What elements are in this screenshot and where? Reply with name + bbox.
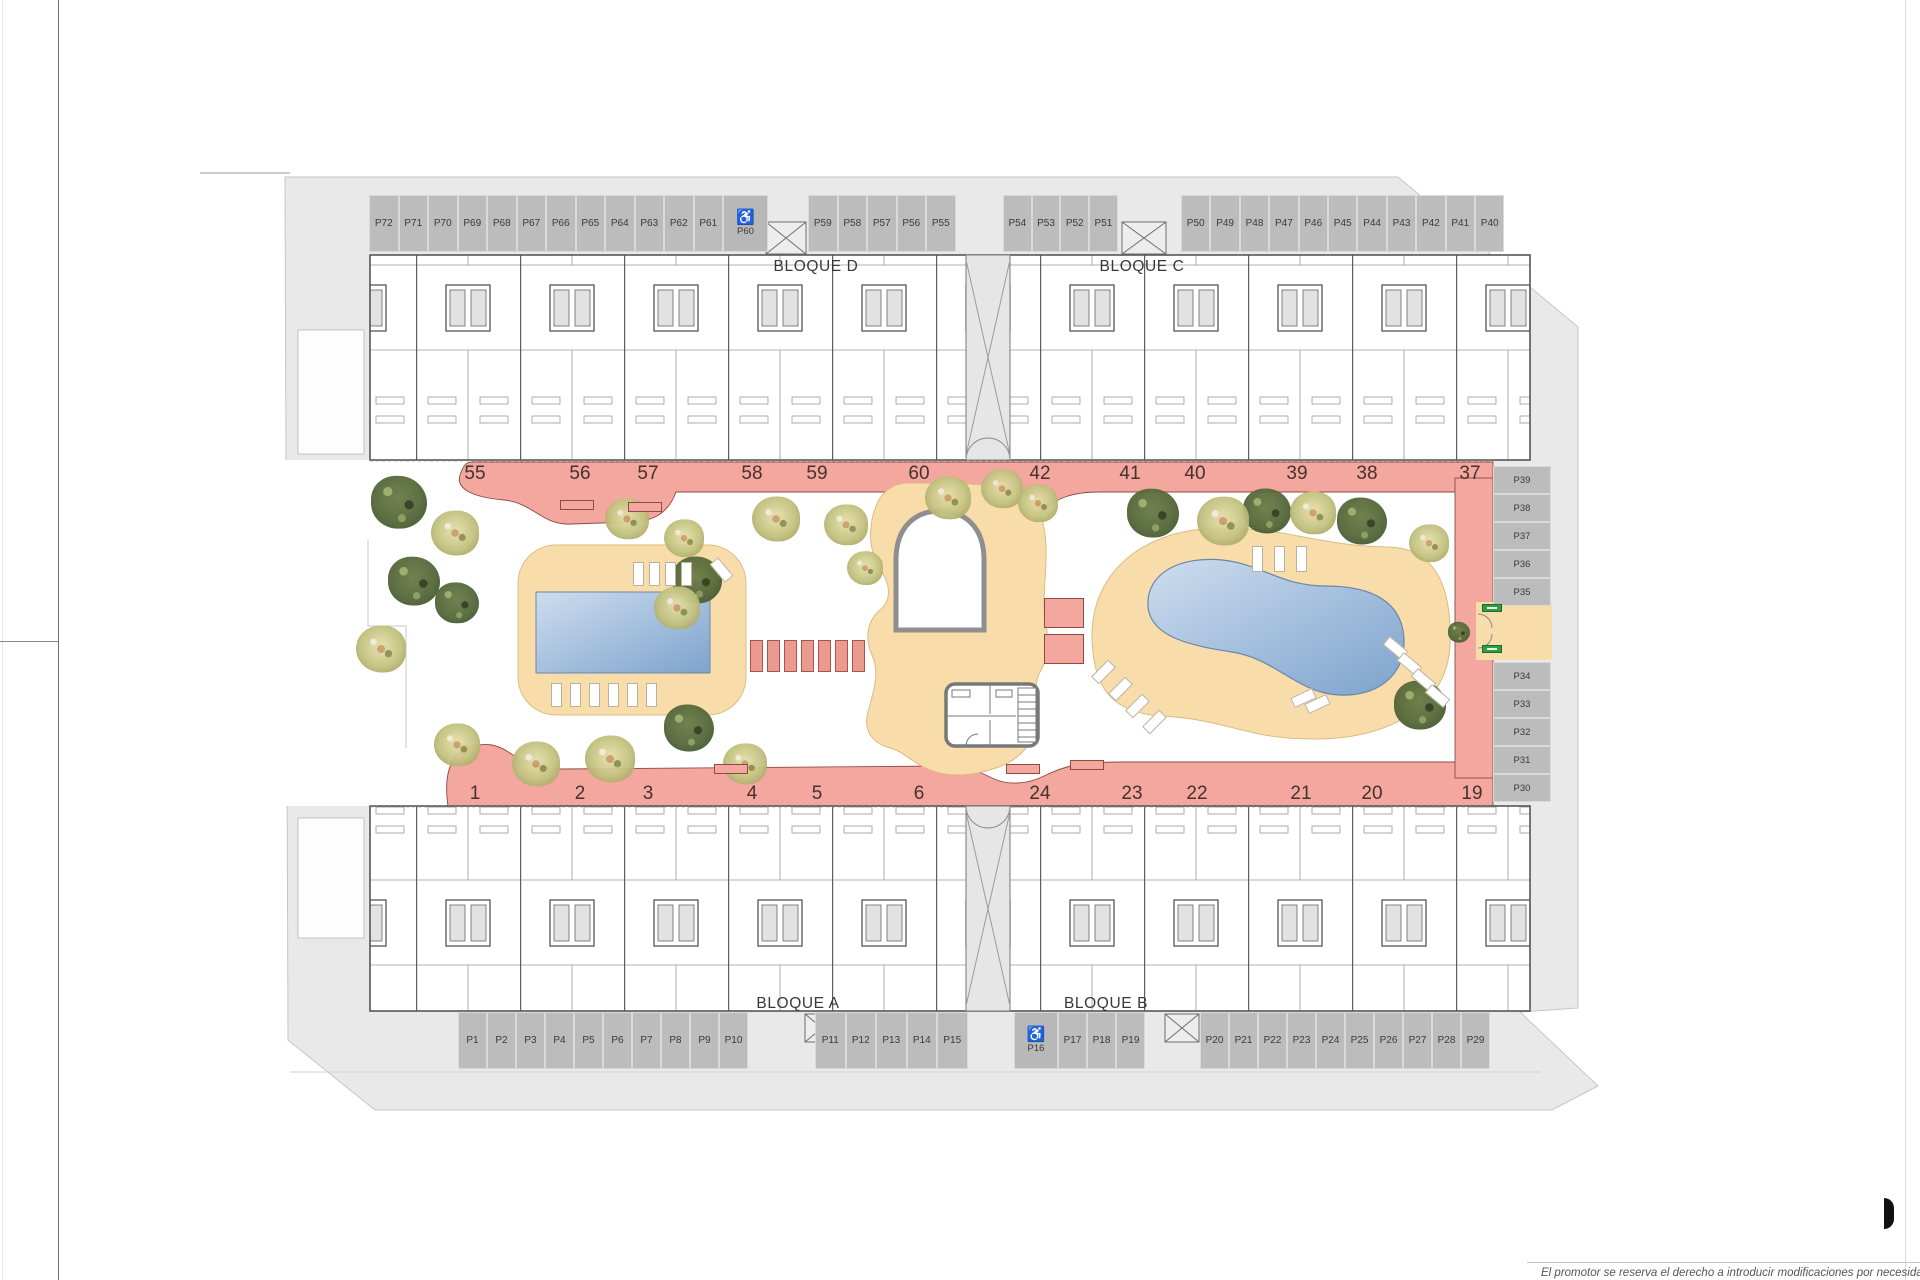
tree-icon [1197, 497, 1249, 546]
parking-stall: P9 [690, 1012, 719, 1069]
parking-stall-label: P62 [670, 218, 688, 229]
unit-number: 37 [1459, 463, 1480, 485]
block-label-bloque-c: BLOQUE C [1100, 258, 1185, 276]
sun-lounger-icon [570, 683, 581, 707]
parking-stall-label: P20 [1206, 1035, 1224, 1046]
sheet-right-rule [1905, 0, 1906, 1280]
parking-stall-label: P63 [640, 218, 658, 229]
parking-stall: P48 [1240, 195, 1269, 252]
walkway-connector [1044, 598, 1084, 628]
parking-stall-label: P2 [495, 1035, 507, 1046]
parking-stall-label: P44 [1363, 218, 1381, 229]
parking-stall-label: P56 [902, 218, 920, 229]
parking-stall: P32 [1493, 718, 1551, 746]
parking-stall-label: P70 [434, 218, 452, 229]
tree-icon [1018, 484, 1058, 522]
parking-stall-accessible: ♿P16 [1014, 1012, 1058, 1069]
tree-icon [664, 519, 704, 557]
sun-lounger-icon [589, 683, 600, 707]
parking-stall-label: P9 [698, 1035, 710, 1046]
parking-stall: P20 [1200, 1012, 1229, 1069]
sun-lounger-icon [665, 562, 676, 586]
block-label-bloque-a: BLOQUE A [756, 995, 839, 1013]
parking-stall-label: P39 [1514, 475, 1531, 486]
parking-stall: P69 [458, 195, 488, 252]
parking-stall-label: P10 [725, 1035, 743, 1046]
parking-stall-label: P19 [1122, 1035, 1140, 1046]
sun-lounger-icon [1091, 660, 1116, 685]
unit-number: 3 [643, 783, 654, 805]
parking-stall: P12 [846, 1012, 877, 1069]
parking-stall-label: P33 [1514, 699, 1531, 710]
stepping-stone [784, 640, 797, 672]
parking-stall-label: P71 [404, 218, 422, 229]
parking-stall-accessible: ♿P60 [723, 195, 768, 252]
parking-stall-label: P8 [669, 1035, 681, 1046]
parking-stall-label: P7 [640, 1035, 652, 1046]
unit-number: 58 [741, 463, 762, 485]
parking-stall-label: P23 [1293, 1035, 1311, 1046]
tree-icon [847, 551, 883, 585]
parking-stall-label: P60 [737, 226, 754, 237]
stepping-stone [750, 640, 763, 672]
sun-lounger-icon [1108, 677, 1133, 702]
unit-number: 4 [747, 783, 758, 805]
tree-icon [1337, 498, 1387, 545]
sun-lounger-icon [1252, 546, 1263, 572]
parking-stall-label: P24 [1322, 1035, 1340, 1046]
parking-stall-label: P6 [611, 1035, 623, 1046]
parking-stall-label: P50 [1187, 218, 1205, 229]
parking-stall: P6 [603, 1012, 632, 1069]
parking-stall: P22 [1258, 1012, 1287, 1069]
stepping-stone [818, 640, 831, 672]
parking-stall-label: P66 [552, 218, 570, 229]
stepping-stone [852, 640, 865, 672]
exit-sign-icon [1482, 645, 1502, 653]
parking-stall-label: P12 [852, 1035, 870, 1046]
parking-stall: P50 [1181, 195, 1210, 252]
parking-stall-label: P67 [522, 218, 540, 229]
parking-stall: P8 [661, 1012, 690, 1069]
unit-number: 38 [1356, 463, 1377, 485]
tree-icon [925, 476, 971, 519]
unit-number: 23 [1121, 783, 1142, 805]
tree-icon [512, 741, 560, 786]
sun-lounger-icon [627, 683, 638, 707]
parking-stall: P43 [1387, 195, 1416, 252]
walkway-bench [628, 502, 662, 512]
unit-number: 59 [806, 463, 827, 485]
parking-stall-label: P31 [1514, 755, 1531, 766]
parking-stall-label: P1 [466, 1035, 478, 1046]
tree-icon [585, 736, 635, 783]
tree-icon [1243, 488, 1291, 533]
parking-stall: P47 [1269, 195, 1298, 252]
tree-icon [388, 557, 440, 606]
parking-stall: P42 [1416, 195, 1445, 252]
parking-stall-label: P4 [553, 1035, 565, 1046]
parking-stall-label: P5 [582, 1035, 594, 1046]
unit-number: 2 [575, 783, 586, 805]
wheelchair-icon: ♿ [1027, 1027, 1046, 1042]
parking-stall: P36 [1493, 550, 1551, 578]
parking-stall-label: P46 [1304, 218, 1322, 229]
sun-lounger-icon [649, 562, 660, 586]
parking-stall: P5 [574, 1012, 603, 1069]
sun-lounger-icon [1274, 546, 1285, 572]
parking-stall: P41 [1446, 195, 1475, 252]
parking-stall: P37 [1493, 522, 1551, 550]
parking-stall: P40 [1475, 195, 1504, 252]
parking-stall-label: P64 [611, 218, 629, 229]
tree-icon [664, 705, 714, 752]
stepping-stone [801, 640, 814, 672]
parking-stall-label: P3 [524, 1035, 536, 1046]
parking-stall: P26 [1374, 1012, 1403, 1069]
parking-stall: P30 [1493, 774, 1551, 802]
walkway-connector [1044, 634, 1084, 664]
parking-stall: P66 [546, 195, 576, 252]
unit-number: 56 [569, 463, 590, 485]
parking-stall-label: P42 [1422, 218, 1440, 229]
parking-stall-label: P18 [1093, 1035, 1111, 1046]
parking-stall-label: P21 [1235, 1035, 1253, 1046]
unit-number: 42 [1029, 463, 1050, 485]
parking-stall-label: P17 [1064, 1035, 1082, 1046]
parking-stall-label: P35 [1514, 587, 1531, 598]
parking-stall-label: P49 [1216, 218, 1234, 229]
parking-stall: P62 [664, 195, 694, 252]
unit-number: 55 [464, 463, 485, 485]
block-label-bloque-b: BLOQUE B [1064, 995, 1148, 1013]
parking-stall-label: P59 [814, 218, 832, 229]
parking-stall-label: P15 [943, 1035, 961, 1046]
wheelchair-icon: ♿ [736, 210, 755, 225]
parking-stall-label: P38 [1514, 503, 1531, 514]
parking-stall: P52 [1060, 195, 1089, 252]
parking-stall-label: P45 [1334, 218, 1352, 229]
block-label-bloque-d: BLOQUE D [774, 258, 859, 276]
tree-icon [1290, 491, 1336, 534]
parking-stall: P65 [576, 195, 606, 252]
sun-lounger-icon [551, 683, 562, 707]
parking-stall: P64 [605, 195, 635, 252]
parking-stall: P4 [545, 1012, 574, 1069]
tree-icon [654, 586, 700, 629]
parking-stall: P14 [907, 1012, 938, 1069]
parking-stall-label: P54 [1008, 218, 1026, 229]
stepping-stone [767, 640, 780, 672]
parking-stall-label: P48 [1246, 218, 1264, 229]
parking-stall-label: P34 [1514, 671, 1531, 682]
disclaimer-rule [1527, 1262, 1920, 1263]
sun-lounger-icon [1142, 710, 1167, 735]
parking-stall: P28 [1432, 1012, 1461, 1069]
sheet-edge-line [2, 0, 3, 1280]
parking-stall: P7 [632, 1012, 661, 1069]
parking-stall: P1 [458, 1012, 487, 1069]
tree-icon [371, 476, 427, 529]
parking-stall-label: P61 [699, 218, 717, 229]
parking-stall-label: P29 [1467, 1035, 1485, 1046]
walkway-bench [714, 764, 748, 774]
tree-icon [824, 504, 868, 545]
parking-stall: P70 [428, 195, 458, 252]
parking-stall: P68 [487, 195, 517, 252]
unit-number: 39 [1286, 463, 1307, 485]
parking-stall-label: P68 [493, 218, 511, 229]
parking-stall: P2 [487, 1012, 516, 1069]
parking-stall: P3 [516, 1012, 545, 1069]
sun-lounger-icon [633, 562, 644, 586]
sun-lounger-icon [681, 562, 692, 586]
unit-number: 57 [637, 463, 658, 485]
parking-stall-label: P52 [1066, 218, 1084, 229]
parking-stall: P58 [838, 195, 868, 252]
parking-stall: P63 [635, 195, 665, 252]
parking-stall: P53 [1032, 195, 1061, 252]
parking-stall: P55 [926, 195, 956, 252]
parking-stall: P51 [1089, 195, 1118, 252]
parking-stall: P45 [1328, 195, 1357, 252]
parking-stall: P15 [937, 1012, 968, 1069]
parking-stall-label: P47 [1275, 218, 1293, 229]
parking-stall-label: P22 [1264, 1035, 1282, 1046]
parking-stall-label: P72 [375, 218, 393, 229]
unit-number: 22 [1186, 783, 1207, 805]
tree-icon [431, 510, 479, 555]
parking-stall: P13 [876, 1012, 907, 1069]
parking-stall-label: P25 [1351, 1035, 1369, 1046]
parking-stall: P38 [1493, 494, 1551, 522]
disclaimer-text: El promotor se reserva el derecho a intr… [1541, 1267, 1920, 1279]
unit-number: 60 [908, 463, 929, 485]
parking-stall-label: P65 [581, 218, 599, 229]
tree-icon [1127, 489, 1179, 538]
unit-number: 1 [470, 783, 481, 805]
tree-icon [752, 496, 800, 541]
parking-stall-label: P30 [1514, 783, 1531, 794]
parking-stall: P31 [1493, 746, 1551, 774]
sheet-left-rule [58, 0, 59, 1280]
sun-lounger-icon [608, 683, 619, 707]
parking-stall-label: P58 [843, 218, 861, 229]
parking-stall-label: P32 [1514, 727, 1531, 738]
parking-stall: P23 [1287, 1012, 1316, 1069]
tree-icon [1394, 681, 1446, 730]
parking-stall: P35 [1493, 578, 1551, 606]
site-plan-sheet: P72P71P70P69P68P67P66P65P64P63P62P61♿P60… [0, 0, 1920, 1280]
unit-number: 40 [1184, 463, 1205, 485]
parking-stall: P25 [1345, 1012, 1374, 1069]
unit-number: 19 [1461, 783, 1482, 805]
parking-stall: P61 [694, 195, 724, 252]
unit-number: 24 [1029, 783, 1050, 805]
walkway-bench [1006, 764, 1040, 774]
parking-stall-label: P36 [1514, 559, 1531, 570]
unit-number: 41 [1119, 463, 1140, 485]
parking-stall-label: P13 [882, 1035, 900, 1046]
sun-lounger-icon [1125, 694, 1150, 719]
parking-stall: P29 [1461, 1012, 1490, 1069]
parking-stall-label: P69 [463, 218, 481, 229]
parking-stall-label: P26 [1380, 1035, 1398, 1046]
parking-stall-label: P28 [1438, 1035, 1456, 1046]
parking-stall-label: P11 [822, 1035, 839, 1046]
tree-icon [1448, 622, 1470, 643]
unit-number: 20 [1361, 783, 1382, 805]
tree-icon [435, 582, 479, 623]
parking-stall-label: P55 [932, 218, 950, 229]
tree-icon [981, 469, 1023, 508]
parking-stall-label: P16 [1028, 1043, 1045, 1054]
stepping-stone [835, 640, 848, 672]
parking-stall: P46 [1299, 195, 1328, 252]
parking-stall: P49 [1210, 195, 1239, 252]
parking-stall-label: P27 [1409, 1035, 1427, 1046]
sun-lounger-icon [646, 683, 657, 707]
sheet-left-tick [0, 641, 58, 642]
parking-stall-label: P14 [913, 1035, 931, 1046]
tree-icon [434, 723, 480, 766]
parking-stall-label: P41 [1451, 218, 1469, 229]
parking-stall-label: P40 [1481, 218, 1499, 229]
parking-stall: P54 [1003, 195, 1032, 252]
parking-stall: P44 [1357, 195, 1386, 252]
parking-stall: P34 [1493, 662, 1551, 690]
tree-icon [356, 626, 406, 673]
walkway-bench [560, 500, 594, 510]
parking-stall: P21 [1229, 1012, 1258, 1069]
exit-sign-icon [1482, 604, 1502, 612]
parking-stall: P11 [815, 1012, 846, 1069]
sun-lounger-icon [1296, 546, 1307, 572]
unit-number: 5 [812, 783, 823, 805]
parking-stall: P27 [1403, 1012, 1432, 1069]
parking-stall: P24 [1316, 1012, 1345, 1069]
parking-stall-label: P43 [1393, 218, 1411, 229]
parking-stall: P33 [1493, 690, 1551, 718]
parking-stall: P18 [1087, 1012, 1116, 1069]
parking-stall: P10 [719, 1012, 748, 1069]
parking-stall-label: P57 [873, 218, 891, 229]
parking-stall: P59 [808, 195, 838, 252]
walkway-bench [1070, 760, 1104, 770]
parking-stall: P71 [399, 195, 429, 252]
parking-stall: P17 [1058, 1012, 1087, 1069]
parking-stall: P67 [517, 195, 547, 252]
unit-number: 6 [914, 783, 925, 805]
parking-stall-label: P53 [1037, 218, 1055, 229]
parking-stall: P72 [369, 195, 399, 252]
parking-stall-label: P51 [1095, 218, 1113, 229]
parking-stall: P39 [1493, 466, 1551, 494]
parking-stall: P19 [1116, 1012, 1145, 1069]
tree-icon [1409, 524, 1449, 562]
parking-stall: P56 [897, 195, 927, 252]
parking-stall: P57 [867, 195, 897, 252]
unit-number: 21 [1290, 783, 1311, 805]
plan-overlay: P72P71P70P69P68P67P66P65P64P63P62P61♿P60… [0, 0, 1920, 1280]
parking-stall-label: P37 [1514, 531, 1531, 542]
